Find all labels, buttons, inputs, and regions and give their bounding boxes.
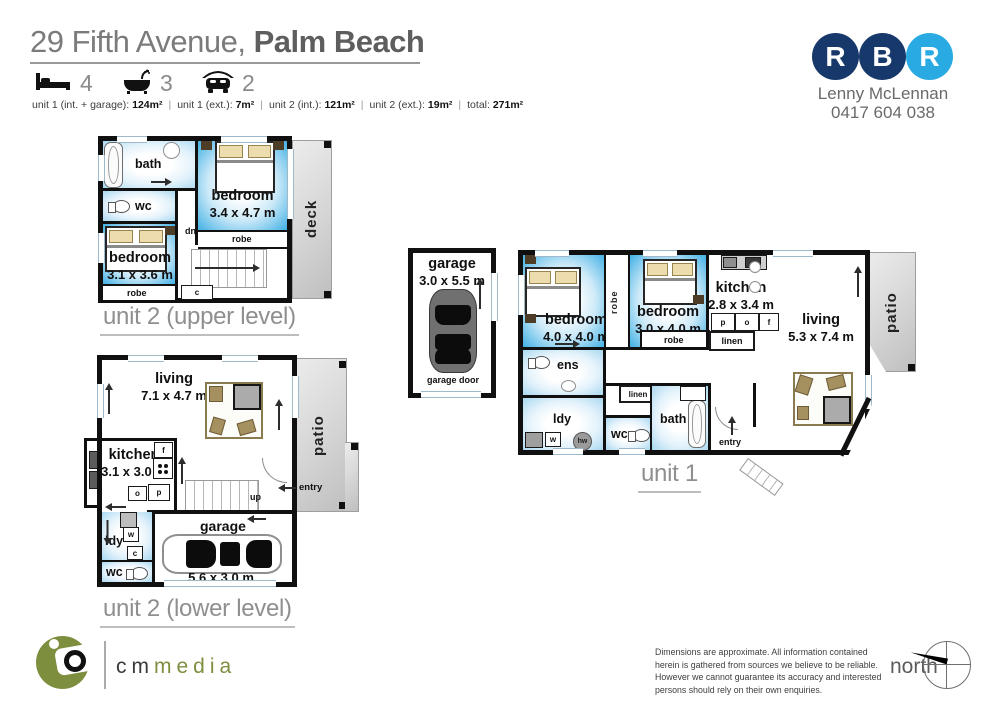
compass bbox=[923, 641, 971, 689]
up-arrow bbox=[479, 281, 481, 309]
pantry-label: p bbox=[721, 318, 726, 327]
linen-label: linen bbox=[629, 390, 648, 399]
toilet bbox=[533, 356, 550, 369]
patio-unit1: patio bbox=[866, 252, 916, 372]
robe-sw: robe bbox=[103, 284, 175, 300]
deck-label: deck bbox=[303, 179, 320, 259]
room-wc: wc bbox=[102, 562, 152, 582]
stat-value: 19m² bbox=[428, 99, 453, 111]
stat-separator: | bbox=[452, 99, 467, 111]
cushion bbox=[209, 417, 226, 436]
car-count: 2 bbox=[242, 70, 255, 97]
room-bedroom-ne: bedroom 3.4 x 4.7 m bbox=[198, 141, 287, 230]
cooktop bbox=[153, 458, 173, 479]
kitchen-labels: kitchen 2.8 x 3.4 m bbox=[703, 279, 779, 313]
pantry: p bbox=[148, 484, 170, 501]
rbr-letter: R bbox=[825, 41, 845, 73]
bed bbox=[643, 259, 697, 305]
cupboard-label: c bbox=[133, 549, 137, 558]
rbr-logo-circle-2: B bbox=[859, 33, 906, 80]
linen-label: linen bbox=[721, 336, 742, 346]
rbr-logo-circle-3: R bbox=[906, 33, 953, 80]
bed-count: 4 bbox=[80, 70, 93, 97]
oven: o bbox=[735, 313, 759, 331]
car bbox=[162, 534, 282, 574]
unit1-caption: unit 1 bbox=[638, 460, 701, 493]
oven-label: o bbox=[745, 318, 750, 327]
entry-area: entry bbox=[711, 405, 755, 450]
washer: w bbox=[123, 527, 139, 542]
cushion bbox=[795, 374, 814, 395]
stat-label: unit 2 (int.): bbox=[269, 99, 324, 111]
ldy-label: ldy bbox=[553, 412, 571, 426]
washer: w bbox=[545, 432, 561, 447]
entry-steps bbox=[739, 458, 783, 496]
fridge-label: f bbox=[768, 318, 771, 327]
sink bbox=[723, 257, 737, 268]
cushion bbox=[237, 419, 257, 436]
robe-label: robe bbox=[609, 279, 619, 325]
agent-phone: 0417 604 038 bbox=[783, 103, 983, 123]
room-bath: bath bbox=[652, 386, 708, 450]
rbr-letter: B bbox=[872, 41, 892, 73]
rbr-logo-circle-1: R bbox=[812, 33, 859, 80]
up-arrow bbox=[278, 402, 280, 430]
stairs-up-label: up bbox=[250, 492, 261, 502]
fridge: f bbox=[154, 442, 173, 458]
cmmedia-wordmark: cmmedia bbox=[116, 655, 236, 679]
downlight bbox=[749, 261, 761, 273]
stat-label: unit 1 (int. + garage): bbox=[32, 99, 132, 111]
stat-value: 124m² bbox=[132, 99, 162, 111]
room-ldy: ldy w hw bbox=[523, 398, 603, 450]
robe-label: robe bbox=[664, 335, 684, 345]
pantry-label: p bbox=[157, 488, 162, 497]
bedroom-ne-labels: bedroom 3.4 x 4.7 m bbox=[198, 187, 287, 221]
patio-post bbox=[908, 364, 915, 371]
floorplan-page: 29 Fifth Avenue, Palm Beach 4 3 2 unit 1… bbox=[0, 0, 1000, 702]
disclaimer: Dimensions are approximate. All informat… bbox=[655, 646, 892, 696]
cupboard-label: c bbox=[195, 288, 199, 297]
room-ens: ens bbox=[523, 350, 603, 395]
entry-arrow bbox=[281, 487, 296, 489]
brand-prefix: cm bbox=[116, 655, 154, 678]
room-ldy: ldy w c bbox=[102, 512, 152, 560]
brand-suffix: media bbox=[154, 655, 236, 678]
stat-value: 121m² bbox=[324, 99, 354, 111]
unit2-lower-plan: living 7.1 x 4.7 m kitchen 3.1 x 3.0 m f… bbox=[97, 355, 297, 587]
entry-arrow bbox=[731, 419, 733, 435]
room-name: bedroom bbox=[198, 187, 287, 205]
toilet bbox=[633, 429, 650, 442]
deck-post bbox=[324, 141, 331, 148]
bed bbox=[215, 141, 275, 193]
living-labels: living 5.3 x 7.4 m bbox=[775, 311, 867, 345]
tv bbox=[233, 384, 261, 410]
door-arrow bbox=[108, 506, 126, 508]
stat-separator: | bbox=[355, 99, 370, 111]
toilet bbox=[131, 567, 148, 580]
unit2-upper-caption: unit 2 (upper level) bbox=[100, 303, 299, 336]
bath-count: 3 bbox=[160, 70, 173, 97]
door-arrow bbox=[107, 520, 109, 542]
laundry-tub bbox=[525, 432, 543, 448]
patio-post bbox=[351, 443, 358, 450]
stairs-arrow bbox=[181, 460, 183, 484]
toilet bbox=[113, 200, 130, 213]
room-name: bedroom bbox=[103, 249, 177, 267]
cushion bbox=[209, 386, 223, 402]
car bbox=[429, 289, 477, 373]
room-name: bedroom bbox=[622, 303, 714, 321]
door-arrow bbox=[250, 518, 266, 520]
door-arrow bbox=[555, 343, 577, 345]
patio-label: patio bbox=[883, 281, 900, 345]
area-stats: unit 1 (int. + garage): 124m²|unit 1 (ex… bbox=[32, 99, 523, 111]
robe-label: robe bbox=[127, 288, 147, 298]
linen-cupboard: linen bbox=[709, 331, 755, 351]
bathtub bbox=[104, 142, 123, 188]
stairs-arrow bbox=[195, 267, 257, 269]
room-bath: bath bbox=[103, 141, 200, 188]
pantry: p bbox=[711, 313, 735, 331]
bath-label: bath bbox=[135, 157, 161, 171]
bath-icon bbox=[122, 68, 154, 94]
tv bbox=[823, 396, 851, 424]
laundry-tub bbox=[120, 512, 137, 528]
patio-label: patio bbox=[310, 403, 327, 469]
page-title: 29 Fifth Avenue, Palm Beach bbox=[30, 24, 424, 60]
patio-unit2-ext bbox=[345, 442, 359, 512]
bathtub bbox=[688, 400, 706, 448]
up-arrow bbox=[108, 386, 110, 414]
fridge-label: f bbox=[162, 446, 165, 455]
oven: o bbox=[128, 486, 147, 501]
room-name: living bbox=[775, 311, 867, 329]
deck-post bbox=[324, 291, 331, 298]
washer-label: w bbox=[550, 435, 556, 444]
unit2-upper-plan: bath wc bedroom 3.1 x 3.6 m robe bbox=[98, 136, 292, 303]
patio-post bbox=[339, 361, 346, 368]
basin bbox=[561, 380, 576, 392]
title-street: 29 Fifth Avenue, bbox=[30, 24, 245, 59]
cupboard: c bbox=[181, 285, 213, 300]
entry-label: entry bbox=[719, 437, 741, 447]
garage-door-label: garage door bbox=[427, 375, 479, 385]
compass-line bbox=[924, 664, 970, 665]
title-suburb: Palm Beach bbox=[254, 24, 425, 59]
camera-viewfinder bbox=[49, 639, 59, 649]
nightstand bbox=[201, 141, 212, 150]
logo-divider bbox=[104, 641, 106, 689]
title-underline bbox=[30, 62, 420, 64]
room-name: kitchen bbox=[703, 279, 779, 297]
oven-label: o bbox=[135, 489, 140, 498]
cupboard: c bbox=[127, 546, 143, 560]
wc-label: wc bbox=[106, 565, 123, 579]
room-wc: wc bbox=[103, 191, 175, 221]
cooktop-burners bbox=[156, 462, 170, 476]
camera-lens-icon bbox=[64, 650, 86, 672]
downlight bbox=[749, 281, 761, 293]
ens-label: ens bbox=[557, 358, 579, 372]
garage-unit1-plan: garage 3.0 x 5.5 m garage door bbox=[408, 248, 496, 398]
cushion bbox=[826, 374, 847, 391]
bed-icon bbox=[35, 71, 73, 93]
wc-label: wc bbox=[135, 199, 152, 213]
compass-line bbox=[946, 642, 947, 688]
room-name: garage bbox=[413, 255, 491, 273]
garage-label: garage bbox=[200, 518, 246, 534]
wc-label: wc bbox=[611, 427, 628, 441]
entry-label: entry bbox=[299, 482, 322, 493]
robe-ne: robe bbox=[198, 230, 287, 249]
stat-value: 7m² bbox=[236, 99, 255, 111]
room-dims: 3.4 x 4.7 m bbox=[198, 205, 287, 221]
bedroom-sw-labels: bedroom 3.1 x 3.6 m bbox=[103, 249, 177, 283]
room-wc: wc bbox=[606, 418, 650, 450]
basin bbox=[163, 142, 180, 159]
unit1-plan: bedroom 4.0 x 4.0 m robe bedroom 3.0 x 4… bbox=[518, 250, 870, 455]
washer-label: w bbox=[128, 530, 134, 539]
stat-separator: | bbox=[162, 99, 177, 111]
car-icon bbox=[200, 68, 236, 94]
room-dims: 2.8 x 3.4 m bbox=[703, 297, 779, 313]
bed bbox=[525, 267, 581, 317]
hw-label: hw bbox=[578, 438, 588, 445]
stairs-dn-label: dn bbox=[185, 226, 196, 236]
bath-label: bath bbox=[660, 412, 686, 426]
stairs bbox=[185, 480, 259, 512]
room-dims: 3.1 x 3.6 m bbox=[103, 267, 177, 283]
room-bedroom2: bedroom 3.0 x 4.0 m robe bbox=[630, 255, 706, 347]
rbr-letter: R bbox=[919, 41, 939, 73]
stat-label: unit 1 (ext.): bbox=[177, 99, 235, 111]
stat-value: 271m² bbox=[493, 99, 523, 111]
robe-label: robe bbox=[232, 234, 252, 244]
door-arrow bbox=[151, 181, 169, 183]
nightstand bbox=[273, 141, 284, 150]
shower bbox=[680, 386, 706, 401]
stat-label: unit 2 (ext.): bbox=[370, 99, 428, 111]
deck-area: deck bbox=[292, 140, 332, 299]
stat-separator: | bbox=[254, 99, 269, 111]
agent-name: Lenny McLennan bbox=[783, 84, 983, 104]
stat-label: total: bbox=[467, 99, 493, 111]
room-dims: 5.3 x 7.4 m bbox=[775, 329, 867, 345]
up-arrow bbox=[857, 269, 859, 297]
unit2-lower-caption: unit 2 (lower level) bbox=[100, 595, 295, 628]
entry-door-arc bbox=[262, 458, 287, 483]
cushion bbox=[797, 406, 809, 420]
